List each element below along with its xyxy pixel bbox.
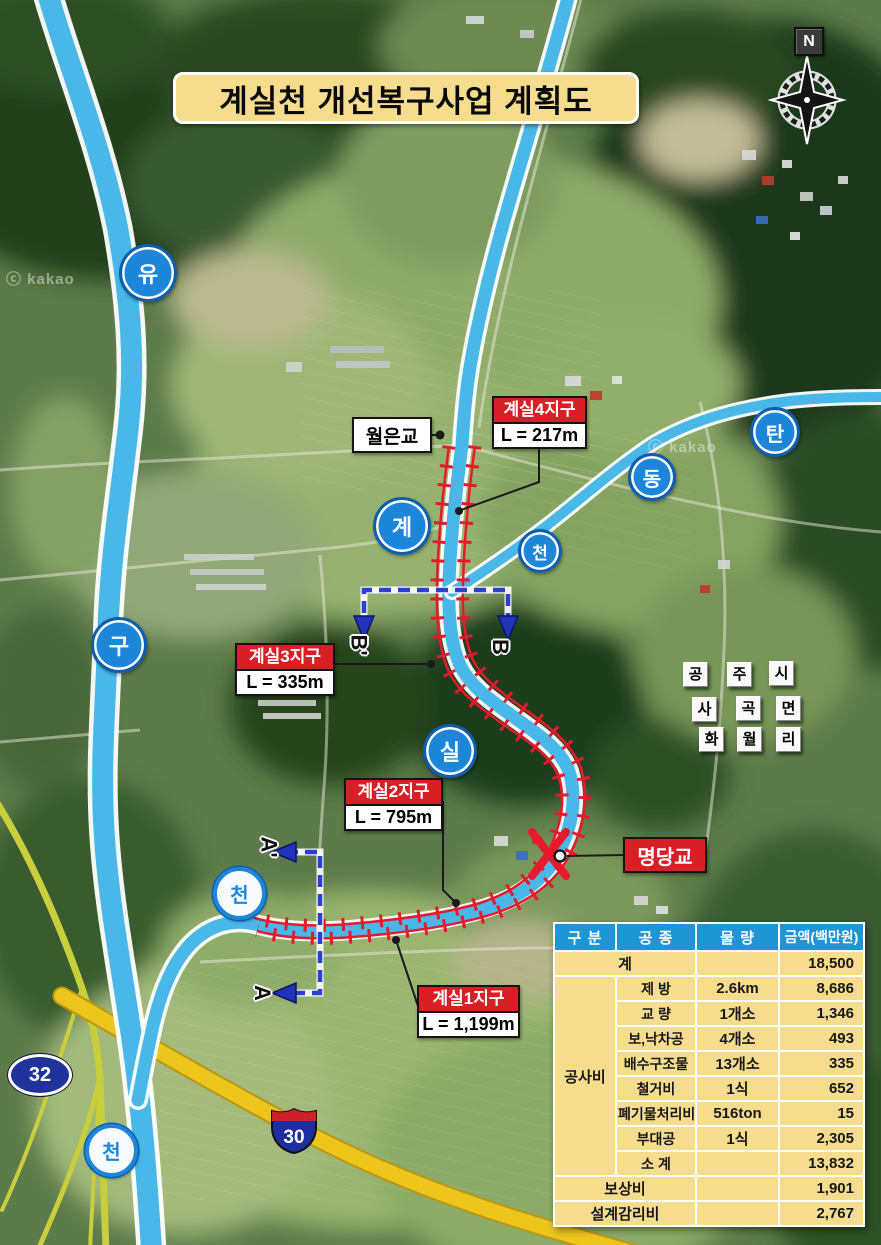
work-name: 소 계 [616,1151,696,1176]
section-label-3: 계실3지구 L = 335m [235,643,335,696]
work-qty: 1식 [696,1126,779,1151]
section-label-2: 계실2지구 L = 795m [344,778,443,831]
cost-summary-table: 구 분 공 종 물 량 금액(백만원) 계 18,500 공사비 제 방 2.6… [553,922,865,1227]
work-name: 배수구조물 [616,1051,696,1076]
region-char: 시 [769,661,794,686]
work-amount: 493 [779,1026,864,1051]
section-letter-a: A [249,985,275,1001]
route-30-shield: 30 [268,1107,320,1155]
work-qty: 4개소 [696,1026,779,1051]
work-name: 보,낙차공 [616,1026,696,1051]
work-amount: 15 [779,1101,864,1126]
table-row: 공사비 제 방 2.6km 8,686 [554,976,864,1001]
work-qty: 1개소 [696,1001,779,1026]
section-letter-a-prime: A' [256,836,282,857]
total-amount: 18,500 [779,951,864,976]
region-char: 화 [699,727,724,752]
region-char: 사 [692,697,717,722]
total-label: 계 [554,951,696,976]
work-name: 폐기물처리비 [616,1101,696,1126]
section-1-length: L = 1,199m [417,1011,520,1038]
work-qty [696,1151,779,1176]
section-label-1: 계실1지구 L = 1,199m [417,985,520,1038]
section-3-length: L = 335m [235,669,335,696]
section-4-length: L = 217m [492,422,587,449]
section-2-name: 계실2지구 [344,778,443,804]
region-char: 월 [737,727,762,752]
footer-qty [696,1201,779,1226]
river-badge-cheon-left: 천 [85,1124,138,1177]
work-qty: 516ton [696,1101,779,1126]
work-qty: 1식 [696,1076,779,1101]
region-char: 곡 [736,696,761,721]
river-badge-tan: 탄 [750,407,800,457]
work-amount: 335 [779,1051,864,1076]
section-2-length: L = 795m [344,804,443,831]
river-badge-gu: 구 [91,617,147,673]
section-label-4: 계실4지구 L = 217m [492,396,587,449]
footer-label: 보상비 [554,1176,696,1201]
section-1-name: 계실1지구 [417,985,520,1011]
footer-amount: 2,767 [779,1201,864,1226]
col-header-gongjong: 공 종 [616,923,696,951]
region-char: 공 [683,662,708,687]
page-title: 계실천 개선복구사업 계획도 [173,72,639,124]
river-badge-dong: 동 [628,453,676,501]
work-name: 제 방 [616,976,696,1001]
work-name: 부대공 [616,1126,696,1151]
work-amount: 8,686 [779,976,864,1001]
work-qty: 2.6km [696,976,779,1001]
river-badge-cheon-low: 천 [213,867,266,920]
route-32-shield: 32 [8,1054,72,1096]
compass-north-label: N [794,27,824,56]
map-watermark: ⓒ kakao [6,268,75,289]
work-amount: 652 [779,1076,864,1101]
river-badge-cheon-mid: 천 [518,529,562,573]
bridge-label-woleun: 월은교 [352,417,432,453]
region-char: 리 [776,727,801,752]
table-row-compensation: 보상비 1,901 [554,1176,864,1201]
section-letter-b-prime: B' [346,634,372,655]
region-char: 주 [727,662,752,687]
table-row-total: 계 18,500 [554,951,864,976]
svg-text:30: 30 [283,1127,304,1148]
work-name: 철거비 [616,1076,696,1101]
work-qty: 13개소 [696,1051,779,1076]
table-row-design: 설계감리비 2,767 [554,1201,864,1226]
section-3-name: 계실3지구 [235,643,335,669]
col-header-qty: 물 량 [696,923,779,951]
river-badge-gye: 계 [373,497,431,555]
work-amount: 2,305 [779,1126,864,1151]
bridge-label-myeongdang: 명당교 [623,837,707,873]
footer-label: 설계감리비 [554,1201,696,1226]
col-header-amount: 금액(백만원) [779,923,864,951]
plan-map: ⓒ kakao ⓒ kakao 계실천 개선복구사업 계획도 N 유 구 천 계… [0,0,881,1245]
river-badge-sil: 실 [423,724,477,778]
work-amount: 1,346 [779,1001,864,1026]
footer-qty [696,1176,779,1201]
work-amount: 13,832 [779,1151,864,1176]
work-name: 교 량 [616,1001,696,1026]
river-badge-yu: 유 [119,244,177,302]
region-char: 면 [776,696,801,721]
total-qty [696,951,779,976]
table-header-row: 구 분 공 종 물 량 금액(백만원) [554,923,864,951]
footer-amount: 1,901 [779,1176,864,1201]
cost-group-label: 공사비 [554,976,616,1176]
col-header-gubun: 구 분 [554,923,616,951]
section-letter-b: B [487,639,513,655]
section-4-name: 계실4지구 [492,396,587,422]
